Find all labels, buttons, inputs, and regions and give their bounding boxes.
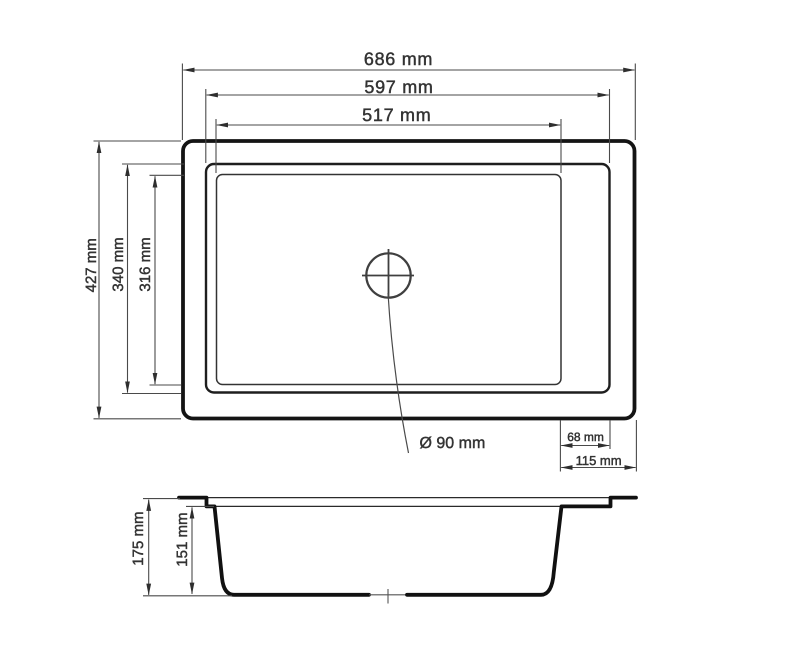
svg-text:68 mm: 68 mm (567, 430, 604, 444)
svg-text:517 mm: 517 mm (362, 105, 431, 125)
svg-text:686 mm: 686 mm (364, 49, 433, 69)
svg-text:597 mm: 597 mm (364, 77, 433, 97)
svg-text:427 mm: 427 mm (83, 238, 100, 292)
svg-text:151 mm: 151 mm (174, 513, 191, 567)
svg-text:115 mm: 115 mm (576, 453, 622, 468)
svg-text:175 mm: 175 mm (130, 512, 147, 566)
svg-text:340 mm: 340 mm (110, 237, 127, 291)
svg-text:Ø 90 mm: Ø 90 mm (420, 435, 486, 452)
svg-text:316 mm: 316 mm (137, 237, 154, 291)
